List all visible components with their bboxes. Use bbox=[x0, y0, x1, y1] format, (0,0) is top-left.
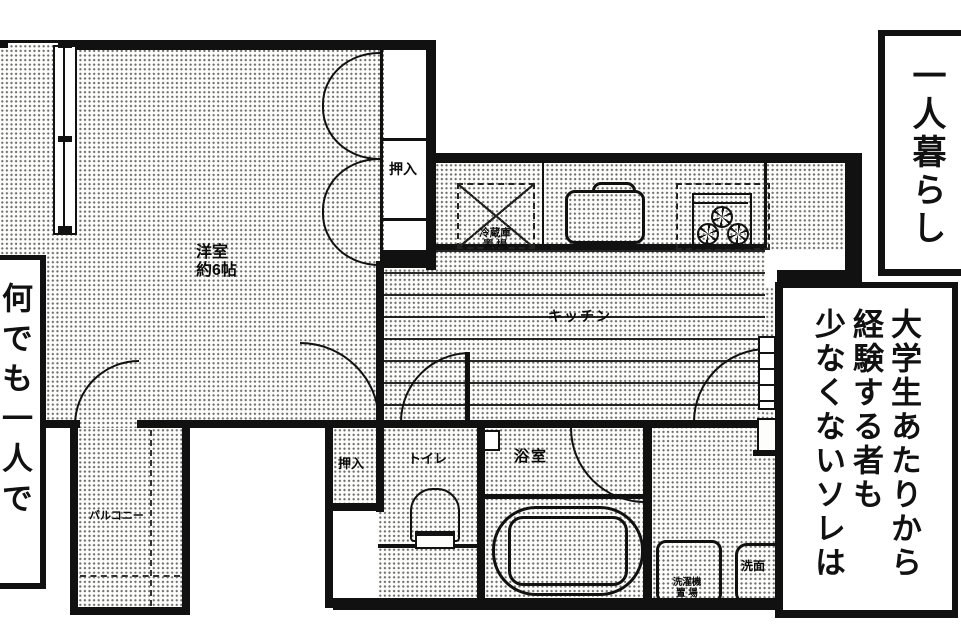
kitchen-label: キッチン bbox=[548, 308, 612, 324]
manga-panel: 冷蔵庫置 場 洗濯機置 場 洗面 洋室約6帖 押入 押入 キッチン トイレ 浴室… bbox=[0, 0, 961, 638]
window-cap bbox=[58, 136, 72, 142]
stove-burner bbox=[727, 223, 749, 245]
window-cap bbox=[58, 40, 72, 48]
balcony-dashed-divider-v bbox=[150, 430, 152, 606]
bathtub-inner bbox=[508, 516, 628, 586]
counter-divider bbox=[542, 163, 544, 244]
bath-label: 浴室 bbox=[514, 448, 548, 465]
corridor-door-leaf bbox=[465, 352, 470, 420]
caption-left: 何でも一人で bbox=[0, 255, 46, 589]
closet-top-label: 押入 bbox=[389, 161, 417, 177]
wall-kitchen-top bbox=[428, 153, 862, 163]
caption-top-right: 一人暮らし bbox=[878, 30, 961, 276]
caption-line: 経験する者も bbox=[846, 308, 884, 610]
kitchen-sink bbox=[565, 190, 645, 244]
caption-line: 少なくないソレは bbox=[808, 308, 846, 610]
room-label: 洋室約6帖 bbox=[196, 207, 237, 317]
washroom-door-leaf bbox=[758, 336, 776, 410]
balcony-dashed-divider-h bbox=[80, 575, 180, 577]
stove-burner bbox=[697, 223, 719, 245]
window-cap bbox=[58, 226, 72, 234]
wall bbox=[376, 428, 384, 512]
washbasin-label: 洗面 bbox=[741, 560, 765, 574]
toilet-label: トイレ bbox=[408, 452, 447, 467]
closet-bottom-label: 押入 bbox=[338, 457, 364, 472]
fridge-space-label: 冷蔵庫置 場 bbox=[466, 203, 524, 275]
toilet-base bbox=[415, 531, 455, 549]
wall-balcony-right bbox=[182, 423, 190, 615]
bath-fitting bbox=[483, 430, 500, 451]
stove-top-bar bbox=[694, 202, 748, 204]
wall bbox=[383, 250, 428, 266]
closet-divider bbox=[383, 138, 426, 141]
wall bbox=[0, 40, 62, 43]
wall-top bbox=[62, 40, 436, 50]
closet-divider bbox=[383, 218, 426, 221]
wall-balcony-left bbox=[70, 423, 78, 615]
caption-line: 大学生あたりから bbox=[884, 308, 922, 610]
wall bbox=[333, 503, 378, 511]
wall-balcony-bottom bbox=[70, 607, 190, 615]
wall bbox=[0, 40, 8, 48]
caption-bottom-right: 大学生あたりから 経験する者も 少なくないソレは bbox=[775, 282, 958, 618]
washer-pan-label: 洗濯機置 場 bbox=[660, 556, 714, 622]
balcony-label: バルコニー bbox=[89, 510, 144, 523]
wall-lower-left bbox=[325, 420, 333, 608]
wall-kitchen-right bbox=[845, 153, 862, 287]
